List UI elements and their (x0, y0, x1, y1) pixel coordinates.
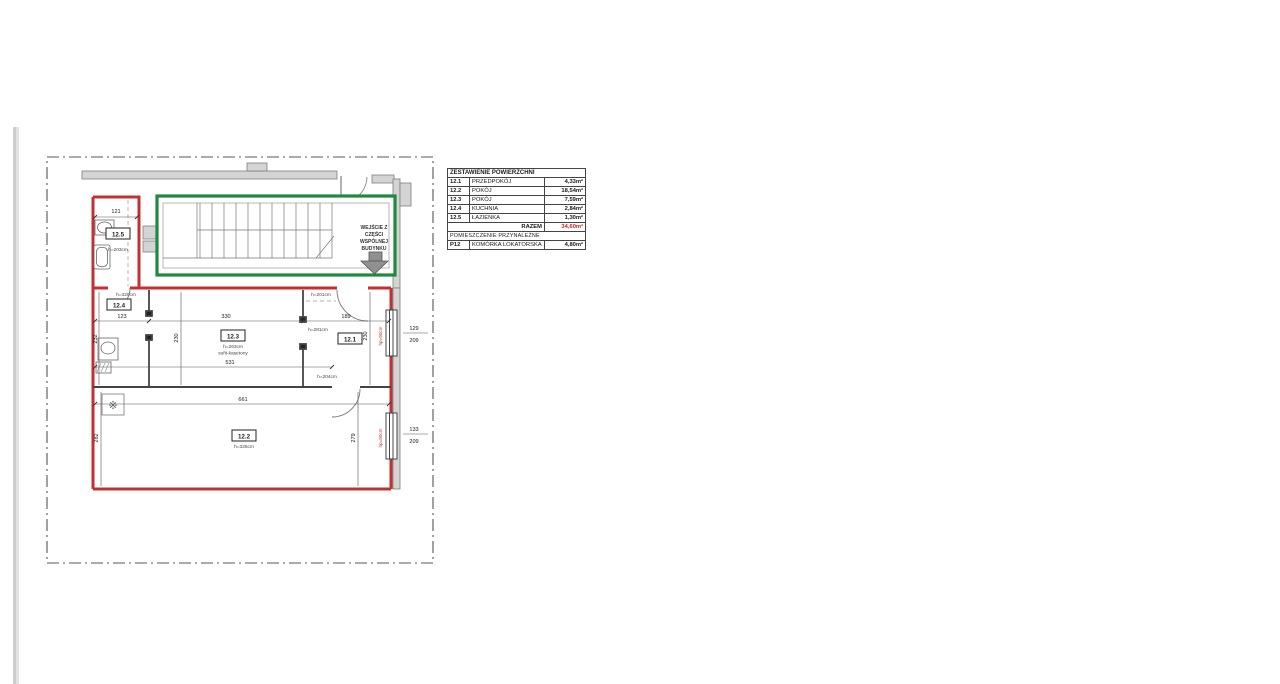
svg-text:531: 531 (225, 360, 234, 366)
kitchen-fixtures (96, 338, 118, 373)
svg-text:hp=90cm: hp=90cm (378, 326, 383, 345)
room-code: 12.1 (448, 178, 470, 187)
svg-text:232: 232 (93, 334, 99, 343)
section-title: POMIESZCZENIE PRZYNALEŻNE (448, 232, 586, 241)
table-row: 12.4 KUCHNIA 2,84m² (448, 205, 586, 214)
svg-text:WSPÓLNEJ: WSPÓLNEJ (360, 237, 388, 245)
svg-text:h=203cm: h=203cm (108, 247, 128, 253)
table-row: 12.1 PRZEDPOKÓJ 4,33m² (448, 178, 586, 187)
room-name: PRZEDPOKÓJ (470, 178, 545, 187)
room-area: 18,54m² (545, 187, 586, 196)
svg-text:129: 129 (409, 326, 418, 332)
room-name: POKÓJ (470, 196, 545, 205)
svg-text:12.4: 12.4 (113, 303, 126, 310)
svg-text:h=201cm: h=201cm (311, 292, 331, 298)
bathtub-inner (97, 248, 108, 267)
svg-text:12.5: 12.5 (112, 232, 125, 239)
total-label: RAZEM (448, 223, 545, 232)
svg-text:12.2: 12.2 (238, 434, 251, 441)
svg-text:279: 279 (351, 433, 357, 442)
room-area: 4,80m² (545, 241, 586, 250)
svg-text:12.3: 12.3 (227, 334, 240, 341)
room-code: 12.5 (448, 214, 470, 223)
table-row: P12 KOMÓRKA LOKATORSKA 4,80m² (448, 241, 586, 250)
duct-symbol (143, 241, 156, 252)
svg-text:230: 230 (363, 331, 369, 340)
svg-text:h=325cm: h=325cm (234, 444, 254, 450)
svg-text:h=281cm: h=281cm (308, 327, 328, 333)
room-code: 12.2 (448, 187, 470, 196)
svg-text:330: 330 (221, 314, 230, 320)
window-2-symbol (386, 413, 397, 459)
room-code: P12 (448, 241, 470, 250)
svg-text:h=320cm: h=320cm (116, 292, 136, 298)
window-1-symbol (386, 310, 397, 356)
room-name: KOMÓRKA LOKATORSKA (470, 241, 545, 250)
bathroom-fixtures (94, 220, 114, 269)
svg-text:CZĘŚCI: CZĘŚCI (365, 231, 384, 238)
scanned-floor-plan-page: WEJŚCIE Z CZĘŚCI WSPÓLNEJ BUDYNKU (0, 0, 1280, 684)
room-code: 12.4 (448, 205, 470, 214)
svg-text:123: 123 (117, 314, 126, 320)
svg-text:189: 189 (341, 314, 350, 320)
common-area-staircase: WEJŚCIE Z CZĘŚCI WSPÓLNEJ BUDYNKU (157, 196, 395, 275)
area-table: ZESTAWIENIE POWIERZCHNI 12.1 PRZEDPOKÓJ … (447, 168, 586, 250)
table-section-row: POMIESZCZENIE PRZYNALEŻNE (448, 232, 586, 241)
vent-symbol: ※ (102, 394, 124, 415)
svg-text:661: 661 (238, 397, 247, 403)
svg-text:209: 209 (409, 338, 418, 344)
svg-text:121: 121 (111, 209, 120, 215)
total-value: 34,60m² (545, 223, 586, 232)
room-name: KUCHNIA (470, 205, 545, 214)
svg-text:※: ※ (108, 400, 117, 412)
svg-text:sufit-kasetony: sufit-kasetony (218, 351, 248, 357)
floor-plan-drawing: WEJŚCIE Z CZĘŚCI WSPÓLNEJ BUDYNKU (0, 0, 1280, 684)
kitchen-sink-symbol (101, 342, 115, 354)
svg-text:12.1: 12.1 (344, 337, 357, 344)
svg-text:133: 133 (409, 427, 418, 433)
room-area: 1,30m² (545, 214, 586, 223)
table-total-row: RAZEM 34,60m² (448, 223, 586, 232)
svg-text:230: 230 (174, 333, 180, 342)
svg-text:WEJŚCIE Z: WEJŚCIE Z (361, 224, 388, 231)
room-area: 7,59m² (545, 196, 586, 205)
svg-text:hp=90cm: hp=90cm (378, 428, 383, 447)
table-row: 12.3 POKÓJ 7,59m² (448, 196, 586, 205)
svg-text:209: 209 (409, 439, 418, 445)
table-title-row: ZESTAWIENIE POWIERZCHNI (448, 169, 586, 178)
table-row: 12.5 ŁAZIENKA 1,30m² (448, 214, 586, 223)
table-title: ZESTAWIENIE POWIERZCHNI (448, 169, 586, 178)
room-name: POKÓJ (470, 187, 545, 196)
svg-text:h=204cm: h=204cm (317, 374, 337, 380)
room-area: 2,84m² (545, 205, 586, 214)
table-row: 12.2 POKÓJ 18,54m² (448, 187, 586, 196)
room-code: 12.3 (448, 196, 470, 205)
svg-text:h=263cm: h=263cm (223, 344, 243, 350)
room-area: 4,33m² (545, 178, 586, 187)
room-name: ŁAZIENKA (470, 214, 545, 223)
svg-text:282: 282 (94, 433, 100, 442)
svg-text:BUDYNKU: BUDYNKU (362, 246, 387, 252)
duct-symbol (143, 226, 156, 239)
